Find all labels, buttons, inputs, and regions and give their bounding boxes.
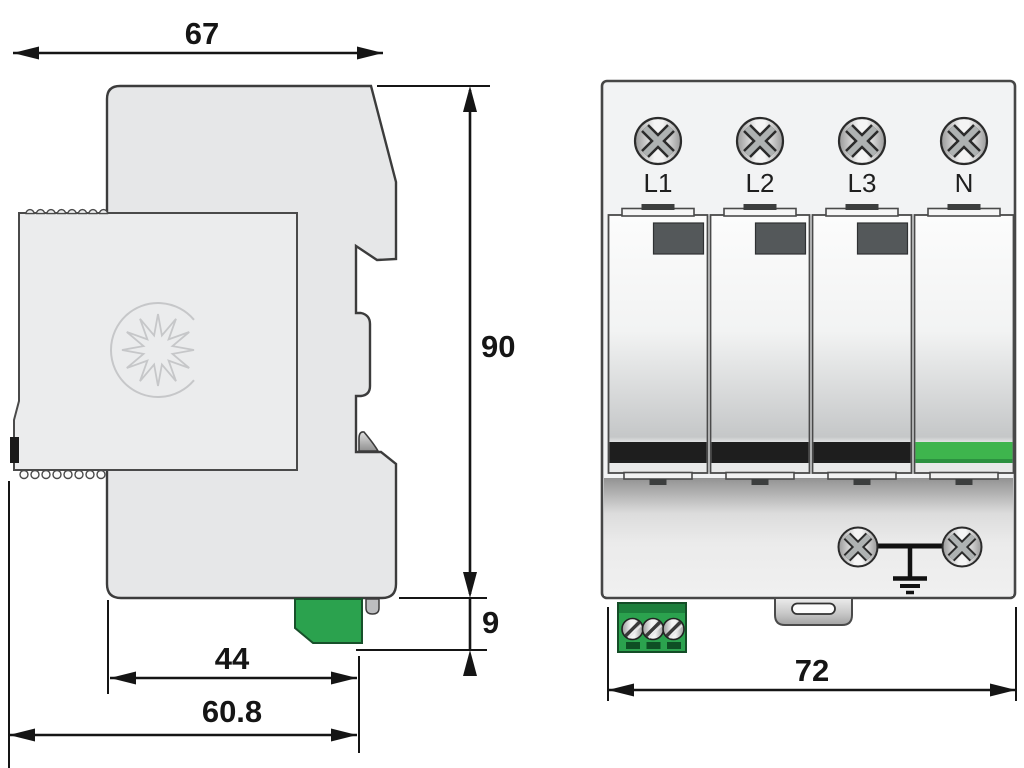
module-l2 [711, 215, 810, 473]
arrow-right-icon [357, 47, 383, 60]
arrow-left-icon [13, 47, 39, 60]
screw-icon [839, 118, 885, 164]
screw-icon [643, 619, 664, 640]
dim-label-44: 44 [215, 641, 250, 676]
dim-label-60-8: 60.8 [202, 694, 262, 729]
arrow-up-icon [463, 650, 477, 676]
arrow-left-icon [9, 729, 35, 742]
arrow-down-icon [463, 572, 477, 598]
screw-icon [941, 118, 987, 164]
status-band-l1 [610, 442, 707, 463]
module-n [915, 215, 1014, 473]
arrow-right-icon [331, 672, 357, 685]
dim-label-90: 90 [481, 329, 515, 364]
screw-icon [839, 528, 878, 567]
dimension-67: 67 [13, 16, 383, 60]
aux-connector-side [295, 599, 362, 643]
dimension-90: 90 [377, 86, 515, 598]
module-l3 [813, 215, 912, 473]
arrow-left-icon [110, 672, 136, 685]
screw-icon [622, 619, 643, 640]
module-bottom-ribs [20, 471, 105, 479]
base-pin [366, 599, 379, 614]
drawing-canvas: L1 L2 L3 N [0, 0, 1024, 768]
status-band-l2 [712, 442, 809, 463]
arrow-right-icon [331, 729, 357, 742]
tab-slot [792, 604, 835, 615]
screw-icon [737, 118, 783, 164]
arrow-right-icon [990, 684, 1016, 697]
dimension-drawing: L1 L2 L3 N [0, 0, 1024, 768]
status-band-l3 [814, 442, 911, 463]
screw-icon [943, 528, 982, 567]
module-l1 [609, 215, 708, 473]
din-rail-tab [775, 598, 852, 625]
front-view: L1 L2 L3 N [602, 81, 1015, 652]
coding-mark [10, 437, 19, 463]
screw-icon [635, 118, 681, 164]
dim-label-72: 72 [795, 653, 829, 688]
arrow-up-icon [463, 86, 477, 112]
module-window-l1 [654, 223, 704, 254]
module-window-l3 [858, 223, 908, 254]
terminal-label-n: N [955, 168, 974, 198]
terminal-label-l1: L1 [644, 168, 673, 198]
aux-terminal-block [618, 603, 686, 652]
side-view [10, 86, 396, 643]
module-window-l2 [756, 223, 806, 254]
screw-icon [663, 619, 684, 640]
terminal-label-l3: L3 [848, 168, 877, 198]
plug-module-side [14, 213, 297, 470]
arrow-left-icon [608, 684, 634, 697]
rail-latch-wedge [359, 432, 378, 451]
dim-label-67: 67 [185, 16, 219, 51]
terminal-label-l2: L2 [746, 168, 775, 198]
dim-label-9: 9 [482, 605, 499, 640]
